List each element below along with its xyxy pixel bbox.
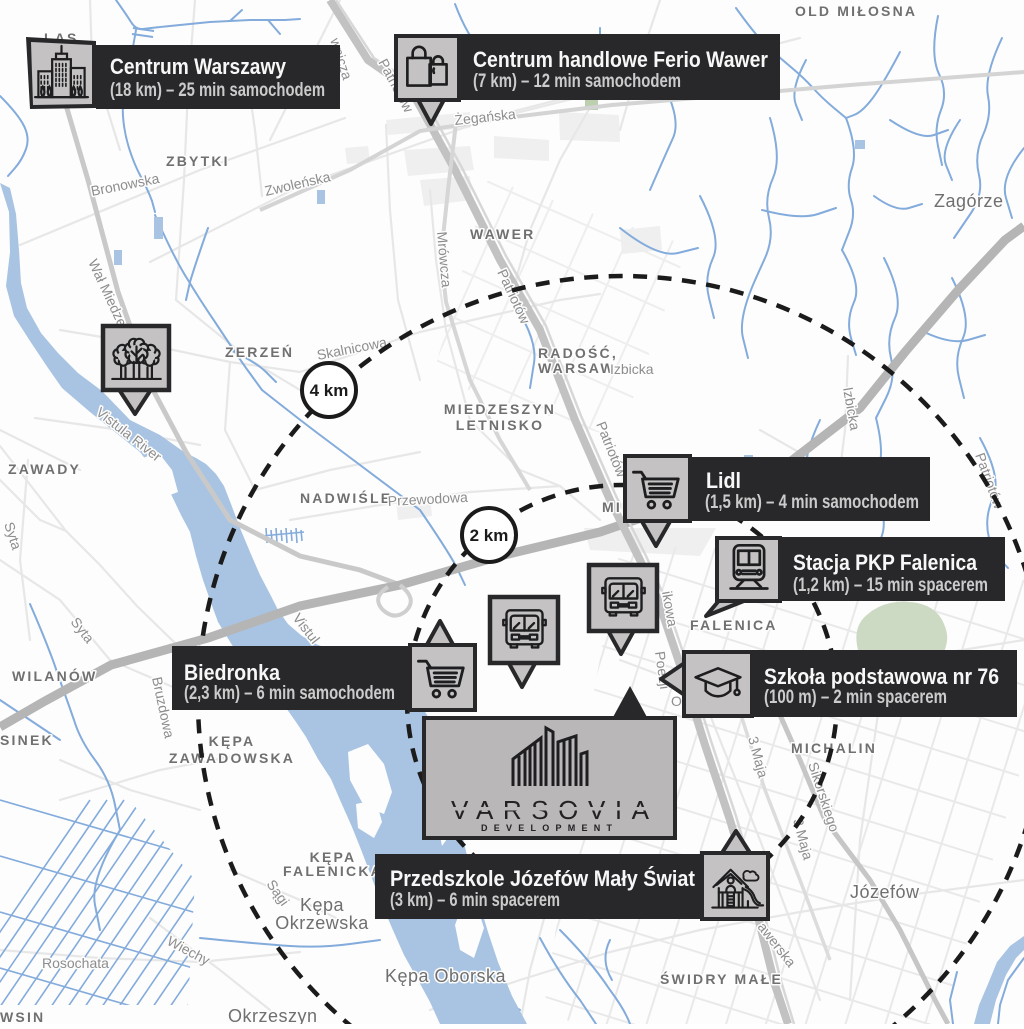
svg-text:Lidl: Lidl [706, 468, 741, 493]
svg-text:WILANÓW: WILANÓW [12, 667, 97, 684]
svg-text:DEVELOPMENT: DEVELOPMENT [481, 823, 619, 833]
svg-text:4 km: 4 km [310, 381, 349, 400]
svg-text:Józefów: Józefów [850, 882, 920, 902]
svg-text:ZAWADY: ZAWADY [8, 461, 81, 477]
svg-text:LETNISKO: LETNISKO [456, 417, 544, 433]
svg-text:(1,5 km) – 4 min samochodem: (1,5 km) – 4 min samochodem [705, 492, 919, 513]
svg-text:2 km: 2 km [470, 526, 509, 545]
svg-text:(2,3 km) – 6 min samochodem: (2,3 km) – 6 min samochodem [184, 683, 395, 704]
svg-text:WSIN: WSIN [0, 1009, 45, 1024]
svg-text:Biedronka: Biedronka [184, 660, 281, 685]
svg-text:KĘPA: KĘPA [209, 733, 256, 749]
svg-text:Okrzeszyn: Okrzeszyn [228, 1006, 318, 1024]
svg-text:OLD MIŁOSNA: OLD MIŁOSNA [795, 3, 917, 19]
svg-text:ZAWADOWSKA: ZAWADOWSKA [169, 750, 295, 766]
svg-text:(3 km) – 6 min spacerem: (3 km) – 6 min spacerem [390, 890, 560, 911]
svg-text:Centrum Warszawy: Centrum Warszawy [110, 54, 287, 79]
svg-text:Przedszkole Józefów Mały Świat: Przedszkole Józefów Mały Świat [390, 866, 696, 891]
svg-text:Stacja PKP Falenica: Stacja PKP Falenica [793, 550, 978, 575]
svg-text:ŚWIDRY MAŁE: ŚWIDRY MAŁE [660, 970, 783, 987]
svg-text:Centrum handlowe Ferio Wawer: Centrum handlowe Ferio Wawer [473, 47, 768, 72]
svg-text:ZERZEŃ: ZERZEŃ [225, 344, 294, 360]
svg-text:Szkoła podstawowa nr 76: Szkoła podstawowa nr 76 [764, 664, 999, 689]
svg-text:MICHALIN: MICHALIN [791, 740, 877, 756]
svg-text:RADOŚĆ,: RADOŚĆ, [538, 344, 618, 361]
svg-text:MIEDZESZYN: MIEDZESZYN [444, 401, 556, 417]
svg-text:Izbicka: Izbicka [610, 361, 654, 377]
svg-text:(7 km) – 12 min samochodem: (7 km) – 12 min samochodem [473, 71, 681, 92]
svg-text:(100 m) – 2 min spacerem: (100 m) – 2 min spacerem [764, 687, 947, 708]
svg-text:O: O [671, 693, 682, 709]
svg-text:WARSAW: WARSAW [538, 360, 616, 376]
svg-text:FALENICKA: FALENICKA [283, 863, 383, 879]
svg-text:Rosochata: Rosochata [42, 955, 109, 971]
svg-text:Kępa Oborska: Kępa Oborska [385, 966, 507, 986]
svg-text:FALENICA: FALENICA [690, 617, 778, 633]
svg-text:SINEK: SINEK [0, 732, 54, 748]
svg-text:(1,2 km) – 15 min spacerem: (1,2 km) – 15 min spacerem [793, 575, 988, 596]
svg-text:ZBYTKI: ZBYTKI [166, 153, 230, 169]
svg-text:Kępa: Kępa [300, 895, 345, 915]
svg-text:Okrzewska: Okrzewska [275, 913, 369, 933]
svg-text:WAWER: WAWER [470, 226, 535, 242]
svg-text:(18 km) – 25 min samochodem: (18 km) – 25 min samochodem [110, 80, 325, 101]
svg-text:Zagórze: Zagórze [934, 191, 1004, 211]
svg-text:NADWIŚLE: NADWIŚLE [300, 489, 392, 506]
